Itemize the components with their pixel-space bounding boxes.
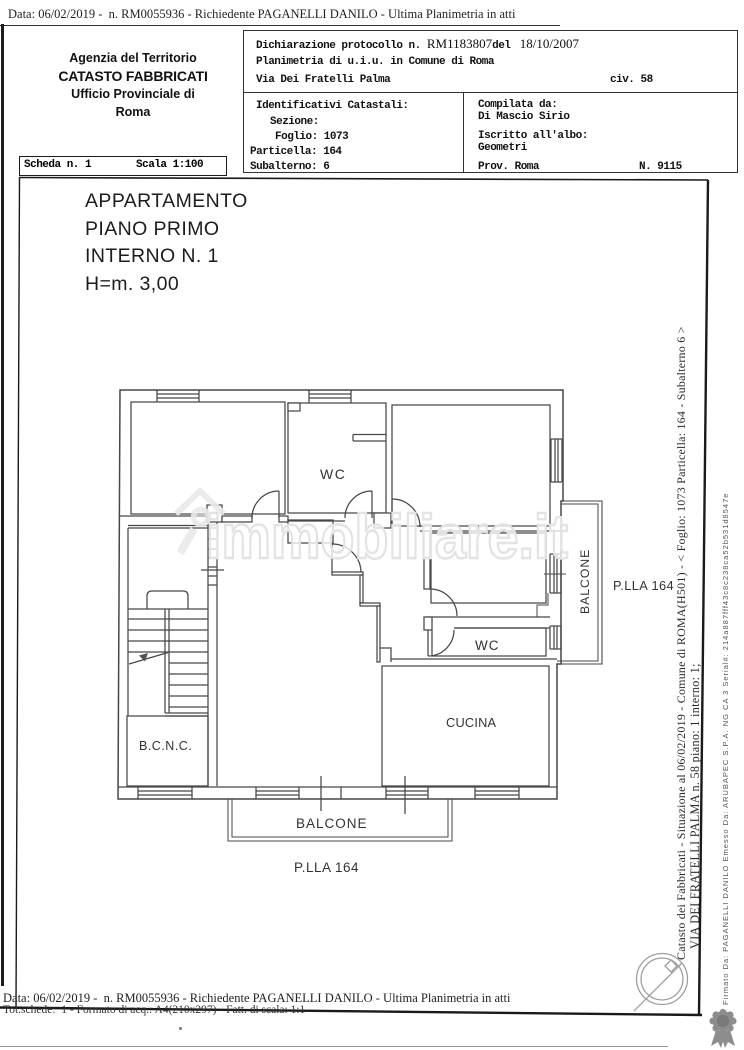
svg-text:BALCONE: BALCONE [296, 816, 368, 831]
svg-text:BALCONE: BALCONE [578, 549, 592, 614]
svg-text:immobiliare.it: immobiliare.it [206, 503, 568, 572]
svg-text:P.LLA 164: P.LLA 164 [294, 860, 359, 875]
svg-text:B.C.N.C.: B.C.N.C. [139, 739, 192, 753]
svg-text:P.LLA 164: P.LLA 164 [613, 578, 674, 593]
svg-text:WC: WC [475, 638, 500, 653]
svg-text:Catasto dei Fabbricati - Situa: Catasto dei Fabbricati - Situazione al 0… [674, 326, 688, 960]
svg-text:Firmato Da: PAGANELLI DANILO E: Firmato Da: PAGANELLI DANILO Emesso Da: … [721, 493, 730, 1005]
svg-text:WC: WC [320, 466, 346, 482]
svg-text:CUCINA: CUCINA [446, 715, 497, 730]
